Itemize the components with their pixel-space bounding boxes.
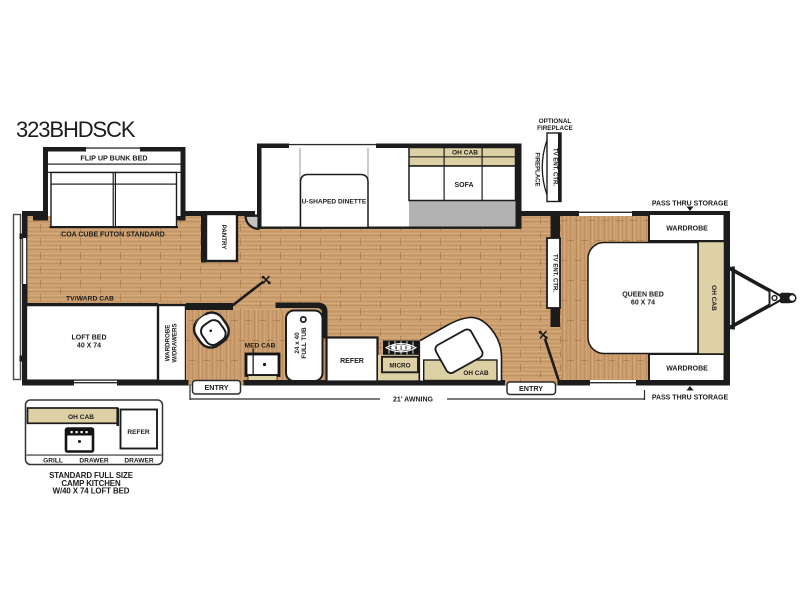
svg-text:OH CAB: OH CAB: [710, 285, 717, 311]
svg-text:W/40 X 74 LOFT BED: W/40 X 74 LOFT BED: [53, 487, 130, 496]
svg-text:FIREPLACE: FIREPLACE: [537, 125, 573, 132]
svg-text:FULL TUB: FULL TUB: [301, 327, 308, 359]
svg-text:OPTIONAL: OPTIONAL: [539, 118, 572, 125]
svg-text:WARDROBE: WARDROBE: [666, 226, 708, 233]
svg-text:COA CUBE FUTON STANDARD: COA CUBE FUTON STANDARD: [61, 232, 165, 239]
svg-text:60 X 74: 60 X 74: [631, 300, 655, 307]
svg-text:DRAWER: DRAWER: [124, 458, 154, 465]
svg-text:FLIP UP BUNK BED: FLIP UP BUNK BED: [80, 154, 147, 163]
svg-text:21' AWNING: 21' AWNING: [393, 397, 433, 404]
svg-text:FIREPLACE: FIREPLACE: [534, 152, 540, 186]
svg-text:OH CAB: OH CAB: [68, 414, 94, 421]
svg-text:TV ENT. CTR.: TV ENT. CTR.: [552, 148, 558, 186]
svg-text:SOFA: SOFA: [454, 182, 473, 189]
svg-text:MED CAB: MED CAB: [245, 343, 276, 350]
svg-text:REFER: REFER: [340, 358, 364, 365]
svg-text:LOFT BED: LOFT BED: [72, 335, 107, 342]
svg-text:PANTRY: PANTRY: [220, 225, 227, 251]
svg-text:24 x 40: 24 x 40: [294, 332, 301, 354]
svg-text:PASS THRU STORAGE: PASS THRU STORAGE: [652, 201, 729, 208]
svg-text:ENTRY: ENTRY: [519, 384, 543, 393]
svg-text:U-SHAPED DINETTE: U-SHAPED DINETTE: [302, 199, 367, 206]
svg-text:OH CAB: OH CAB: [452, 150, 478, 157]
svg-text:MICRO: MICRO: [389, 362, 410, 369]
svg-text:323BHDSCK: 323BHDSCK: [16, 117, 136, 142]
svg-text:GRILL: GRILL: [43, 458, 63, 465]
svg-text:WARDROBE: WARDROBE: [666, 366, 708, 373]
svg-text:PASS THRU STORAGE: PASS THRU STORAGE: [652, 395, 729, 402]
svg-text:TV ENT. CTR.: TV ENT. CTR.: [552, 254, 558, 292]
svg-text:TV/WARD CAB: TV/WARD CAB: [66, 296, 114, 303]
svg-text:ENTRY: ENTRY: [204, 383, 228, 392]
svg-text:WARDROBE: WARDROBE: [165, 325, 172, 362]
svg-text:REFER: REFER: [127, 429, 150, 436]
svg-text:W/DRAWERS: W/DRAWERS: [172, 323, 179, 362]
svg-text:OH CAB: OH CAB: [463, 370, 489, 377]
svg-text:QUEEN BED: QUEEN BED: [622, 292, 664, 299]
svg-text:DRAWER: DRAWER: [79, 458, 109, 465]
svg-text:40 X 74: 40 X 74: [77, 343, 101, 350]
